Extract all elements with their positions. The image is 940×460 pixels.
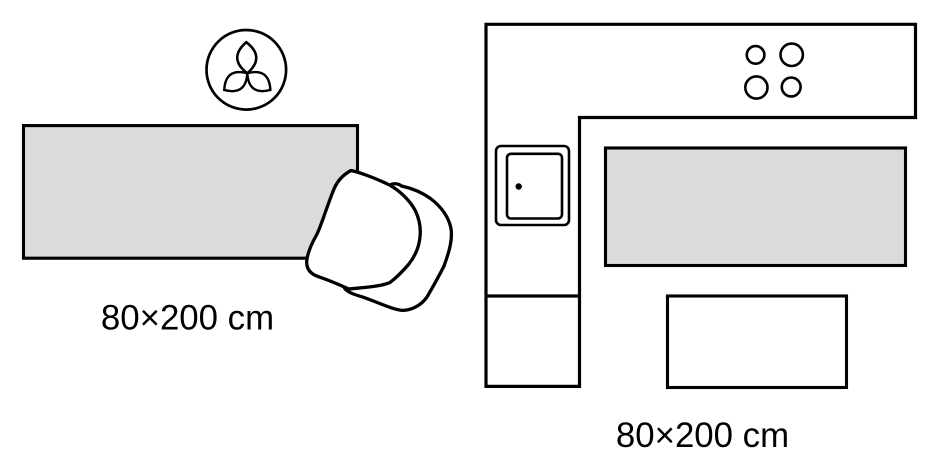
- svg-text:80×200 cm: 80×200 cm: [616, 416, 789, 455]
- svg-text:80×200 cm: 80×200 cm: [101, 299, 274, 338]
